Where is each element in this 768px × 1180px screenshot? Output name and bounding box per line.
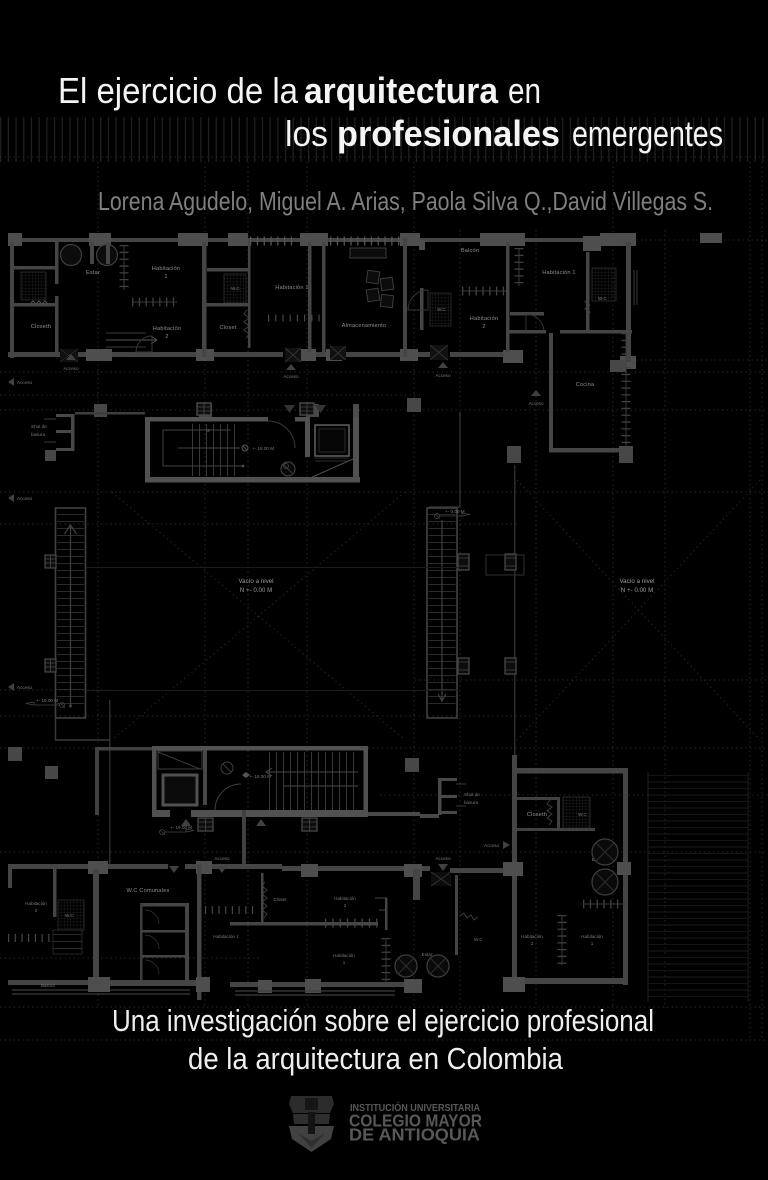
svg-text:Closet: Closet (219, 325, 236, 331)
svg-text:3: 3 (207, 428, 210, 433)
svg-text:W.C: W.C (437, 307, 446, 312)
svg-text:Shut de: Shut de (464, 792, 480, 797)
svg-text:Estar: Estar (86, 270, 100, 276)
svg-text:Habitación 1: Habitación 1 (275, 285, 309, 291)
svg-text:W.C: W.C (598, 296, 607, 301)
svg-text:emergentes: emergentes (572, 113, 723, 154)
svg-text:Habitación 1: Habitación 1 (542, 270, 576, 276)
svg-text:Balcón: Balcón (461, 248, 479, 254)
svg-text:W.C: W.C (474, 937, 483, 942)
svg-text:Acceso: Acceso (528, 401, 544, 406)
svg-text:+- 19.00 M: +- 19.00 M (170, 825, 192, 830)
svg-text:El ejercicio de la: El ejercicio de la (58, 70, 299, 111)
svg-text:basura: basura (464, 800, 478, 805)
svg-text:Acceso: Acceso (435, 373, 451, 378)
svg-text:+- 0.00 M: +- 0.00 M (445, 509, 465, 514)
svg-text:2: 2 (344, 903, 347, 908)
svg-text:Acceso: Acceso (484, 843, 500, 848)
svg-text:1: 1 (164, 274, 167, 280)
svg-text:W.C Comunales: W.C Comunales (126, 888, 169, 894)
svg-text:Acceso: Acceso (435, 856, 451, 861)
svg-text:+- 18.00 M: +- 18.00 M (252, 446, 274, 451)
svg-text:Acceso: Acceso (283, 374, 299, 379)
svg-text:Acceso: Acceso (214, 856, 230, 861)
svg-text:Vacío a nivel: Vacío a nivel (239, 578, 274, 585)
svg-text:Acceso: Acceso (17, 380, 33, 385)
svg-text:de la arquitectura en Colombia: de la arquitectura en Colombia (188, 1041, 564, 1076)
svg-text:W.C: W.C (578, 812, 587, 817)
svg-text:Una investigación sobre el eje: Una investigación sobre el ejercicio pro… (112, 1003, 654, 1038)
svg-text:N +- 0.00 M: N +- 0.00 M (621, 587, 654, 594)
svg-text:arquitectura: arquitectura (304, 70, 499, 111)
svg-text:Almacenamiento: Almacenamiento (342, 323, 386, 329)
svg-text:profesionales: profesionales (337, 113, 560, 154)
svg-text:1: 1 (343, 960, 346, 965)
svg-text:DE ANTIOQUIA: DE ANTIOQUIA (349, 1125, 480, 1145)
svg-text:Acceso: Acceso (63, 366, 79, 371)
svg-text:Shut de: Shut de (31, 424, 47, 429)
svg-text:+- 18.00 M: +- 18.00 M (249, 774, 271, 779)
svg-text:W.C: W.C (65, 913, 74, 918)
svg-text:Closet: Closet (273, 897, 287, 902)
svg-text:Balcón: Balcón (41, 983, 55, 988)
svg-text:Habitación: Habitación (581, 934, 603, 939)
svg-text:Habitación: Habitación (25, 901, 47, 906)
svg-text:Cocina: Cocina (576, 382, 595, 388)
svg-text:2: 2 (482, 324, 485, 330)
svg-text:+- 19.00 M: +- 19.00 M (36, 698, 58, 703)
svg-text:Vacío a nivel: Vacío a nivel (620, 578, 655, 585)
svg-text:Lorena Agudelo, Miguel A. Aria: Lorena Agudelo, Miguel A. Arias, Paola S… (98, 186, 713, 216)
svg-text:Acceso: Acceso (17, 496, 33, 501)
svg-text:Habitación: Habitación (333, 953, 355, 958)
svg-text:Habitación: Habitación (334, 896, 356, 901)
svg-text:1: 1 (591, 941, 594, 946)
svg-text:2: 2 (35, 908, 38, 913)
svg-text:Closeth: Closeth (527, 812, 547, 818)
svg-text:Habitación 1: Habitación 1 (213, 934, 239, 939)
svg-text:Habitación: Habitación (153, 326, 181, 332)
svg-text:N +- 0.00 M: N +- 0.00 M (240, 587, 273, 594)
svg-text:Habitación: Habitación (152, 266, 180, 272)
svg-text:2: 2 (165, 334, 168, 340)
svg-text:los: los (285, 113, 328, 154)
svg-text:en: en (508, 70, 541, 111)
svg-text:Acceso: Acceso (17, 685, 33, 690)
svg-text:2: 2 (531, 941, 534, 946)
svg-text:Estar: Estar (422, 952, 433, 957)
svg-text:Habitación: Habitación (521, 934, 543, 939)
svg-text:Closeth: Closeth (31, 324, 51, 330)
svg-text:Habitación: Habitación (470, 316, 498, 322)
svg-text:W.C: W.C (231, 286, 240, 291)
svg-text:basura: basura (31, 432, 45, 437)
